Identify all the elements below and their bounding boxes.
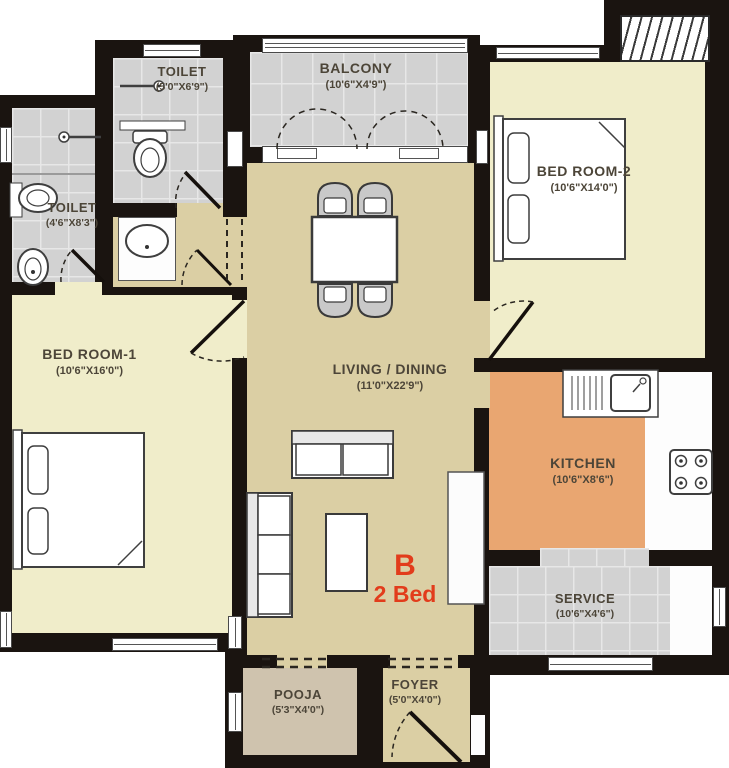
room-dims: (4'6"X8'3") (17, 217, 127, 230)
room-dims: (10'6"X14'0") (523, 182, 645, 196)
balcony-door-leaf-right (399, 148, 439, 159)
label-service: SERVICE (10'6"X4'6") (525, 591, 645, 621)
floor-bedroom2 (490, 62, 705, 358)
window-bedroom1-west (0, 611, 12, 648)
doorway-kitchen (474, 372, 490, 408)
label-toilet1: TOILET (5'0"X6'9") (127, 64, 237, 94)
unit-label: B 2 Bed (356, 551, 454, 609)
room-dims: (5'0"X4'0") (362, 694, 468, 707)
label-bedroom1: BED ROOM-1 (10'6"X16'0") (22, 346, 157, 378)
niche-balcony-wall (476, 130, 488, 164)
balcony-door-sill (262, 146, 468, 163)
service-platform (670, 566, 712, 655)
room-name: POOJA (245, 687, 351, 703)
room-dims: (10'6"X16'0") (22, 365, 157, 379)
unit-block-letter: B (356, 551, 454, 581)
label-living: LIVING / DINING (11'0"X22'9") (315, 361, 465, 393)
label-balcony: BALCONY (10'6"X4'9") (296, 60, 416, 92)
doorway-bedroom1 (230, 300, 247, 358)
room-dims: (10'6"X8'6") (522, 474, 644, 488)
unit-type: 2 Bed (356, 581, 454, 609)
doorway-toilet2 (55, 282, 102, 295)
entry-doorway (471, 715, 485, 755)
floor-plan: TOILET (5'0"X6'9") TOILET (4'6"X8'3") BA… (0, 0, 729, 768)
window-living-southwest (228, 616, 242, 649)
window-bedroom2 (496, 47, 600, 59)
room-name: BALCONY (296, 60, 416, 78)
niche-toilet1-wall (227, 131, 243, 167)
room-name: BED ROOM-1 (22, 346, 157, 364)
room-name: TOILET (127, 64, 237, 80)
window-service-east (713, 587, 726, 627)
label-pooja: POOJA (5'3"X4'0") (245, 687, 351, 717)
doorway-bedroom2 (474, 301, 490, 358)
room-dims: (11'0"X22'9") (315, 380, 465, 394)
label-bedroom2: BED ROOM-2 (10'6"X14'0") (523, 163, 645, 195)
room-dims: (10'6"X4'9") (296, 79, 416, 93)
room-name: BED ROOM-2 (523, 163, 645, 181)
window-service-south (548, 657, 653, 671)
room-dims: (5'3"X4'0") (245, 704, 351, 717)
label-foyer: FOYER (5'0"X4'0") (362, 677, 468, 707)
room-dims: (5'0"X6'9") (127, 81, 237, 94)
window-toilet2-west (0, 127, 12, 163)
room-name: LIVING / DINING (315, 361, 465, 379)
window-pooja-west (228, 692, 242, 732)
room-name: TOILET (17, 200, 127, 216)
label-toilet2: TOILET (4'6"X8'3") (17, 200, 127, 230)
opening-pooja (277, 655, 327, 668)
shaft-hatch (620, 15, 710, 62)
label-kitchen: KITCHEN (10'6"X8'6") (522, 455, 644, 487)
balcony-door-leaf-left (277, 148, 317, 159)
room-dims: (10'6"X4'6") (525, 608, 645, 621)
window-bedroom1-south (112, 638, 218, 651)
floor-service-opening (540, 548, 649, 566)
room-name: FOYER (362, 677, 468, 693)
room-name: KITCHEN (522, 455, 644, 473)
floor-toilet2 (12, 108, 95, 282)
balcony-railing (262, 38, 468, 53)
room-name: SERVICE (525, 591, 645, 607)
doorway-toilet1 (177, 203, 223, 217)
opening-foyer (390, 655, 458, 668)
window-toilet1 (143, 44, 201, 57)
